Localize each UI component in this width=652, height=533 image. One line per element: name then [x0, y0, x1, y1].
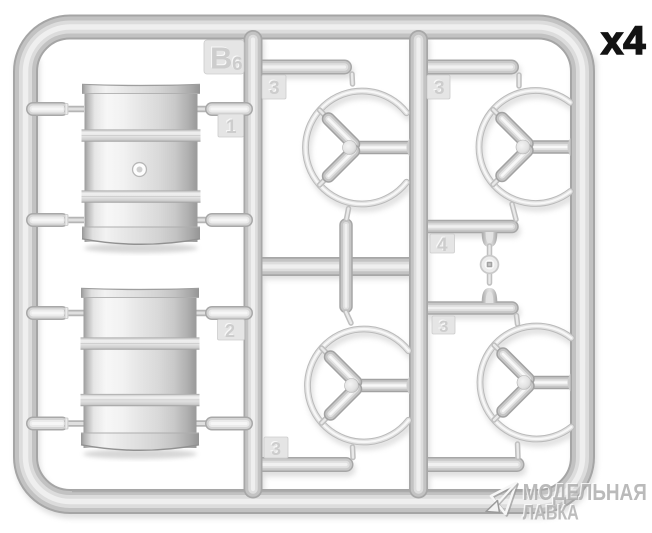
svg-text:B: B: [210, 41, 232, 76]
svg-text:2: 2: [225, 321, 235, 341]
svg-text:x4: x4: [601, 19, 646, 63]
svg-text:6: 6: [232, 54, 243, 75]
svg-text:4: 4: [437, 235, 448, 256]
svg-text:ЛАВКА: ЛАВКА: [523, 502, 579, 525]
svg-text:3: 3: [269, 78, 280, 99]
svg-text:1: 1: [226, 117, 237, 138]
svg-text:3: 3: [439, 317, 448, 336]
svg-text:3: 3: [434, 78, 445, 99]
svg-text:3: 3: [271, 439, 281, 459]
